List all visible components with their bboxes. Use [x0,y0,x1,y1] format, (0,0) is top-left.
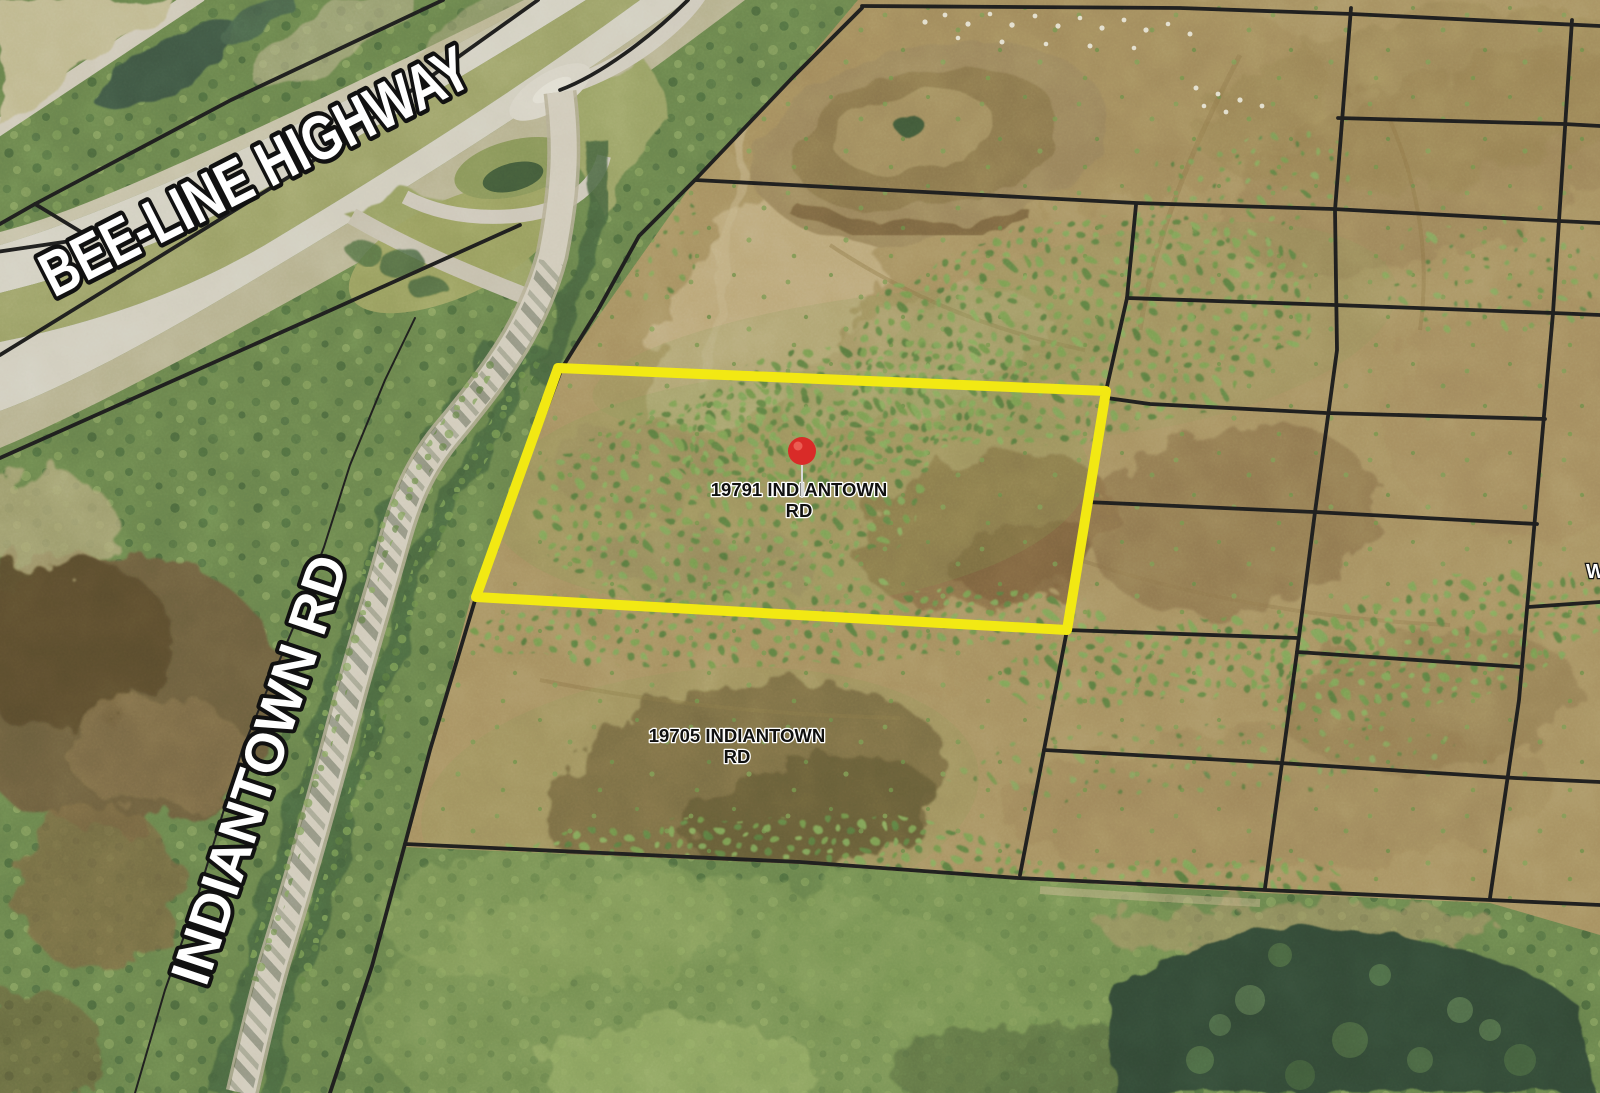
svg-text:19705 INDIANTOWN: 19705 INDIANTOWN [649,725,825,746]
svg-text:19791 INDIANTOWN: 19791 INDIANTOWN [711,479,887,500]
svg-text:RD: RD [786,500,813,521]
svg-text:W: W [1586,561,1600,583]
svg-text:RD: RD [724,746,751,767]
